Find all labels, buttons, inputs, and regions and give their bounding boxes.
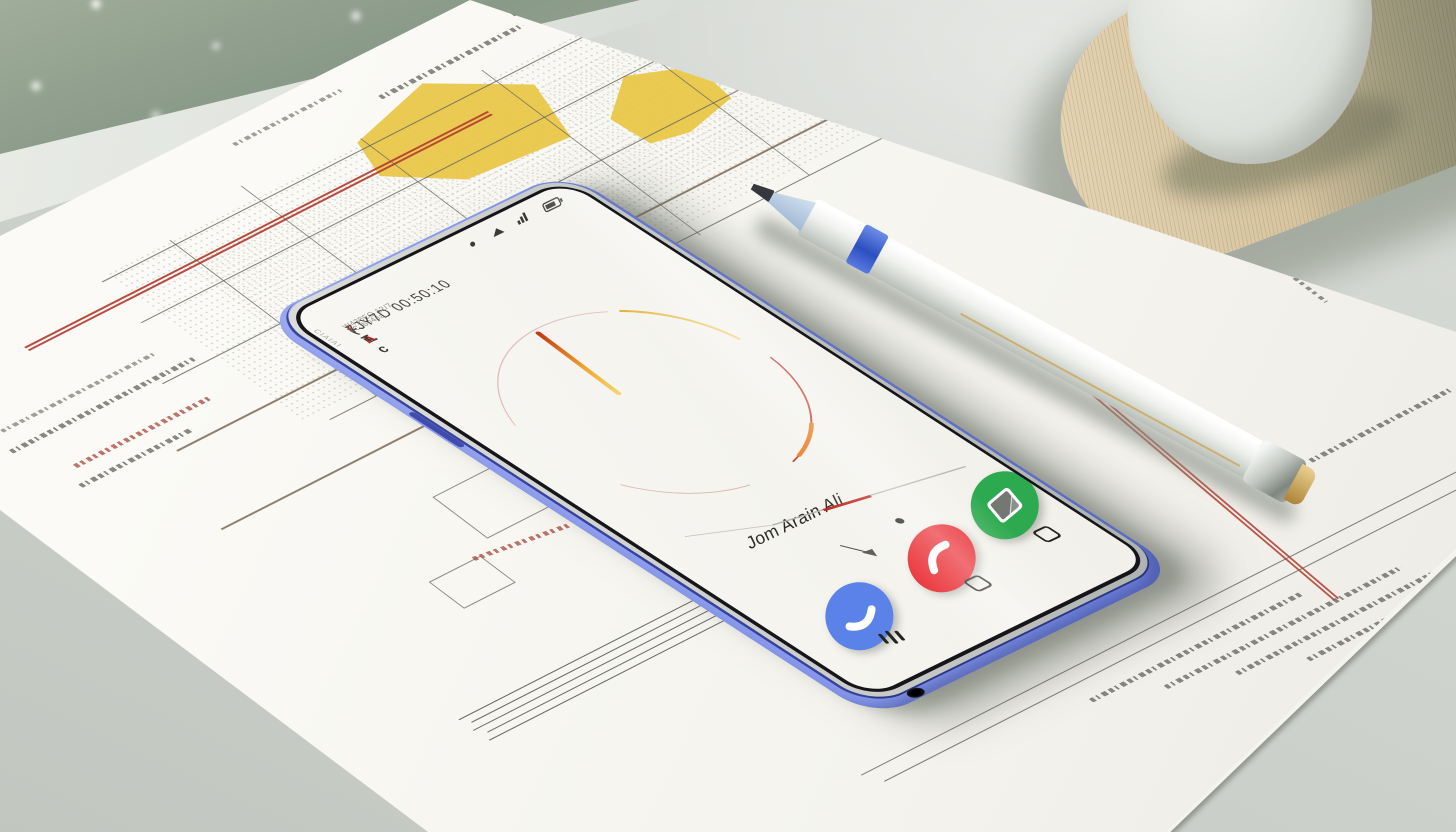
blueprint-line xyxy=(220,411,453,530)
ring-arc-gold xyxy=(621,290,739,360)
ring-arc-faint xyxy=(439,302,668,426)
header-number-line: 7JY7D 00:50:10 xyxy=(341,277,455,335)
battery-icon xyxy=(542,196,564,212)
phone-decline-icon xyxy=(896,513,987,604)
down-arrow-icon xyxy=(840,540,873,560)
scene: CIAIAI W438EO 12/7 ( n c * A ~ T. 8CJb04… xyxy=(0,0,1456,832)
signal-bars-icon xyxy=(515,212,528,225)
wifi-icon xyxy=(491,226,505,238)
ring-hand-stroke xyxy=(531,333,625,393)
dot-marker xyxy=(893,517,906,525)
message-icon xyxy=(986,486,1024,524)
dot-icon xyxy=(469,241,476,248)
plan-box xyxy=(429,556,516,609)
down-arrow-head xyxy=(862,548,881,559)
ring-arc-red xyxy=(691,357,872,462)
ring-arc-faint xyxy=(620,449,749,521)
annotation-strip xyxy=(1089,592,1303,702)
message-icon-inner xyxy=(990,491,1020,520)
ring-arc-orange xyxy=(776,424,834,456)
annotation-strip xyxy=(1308,387,1455,463)
